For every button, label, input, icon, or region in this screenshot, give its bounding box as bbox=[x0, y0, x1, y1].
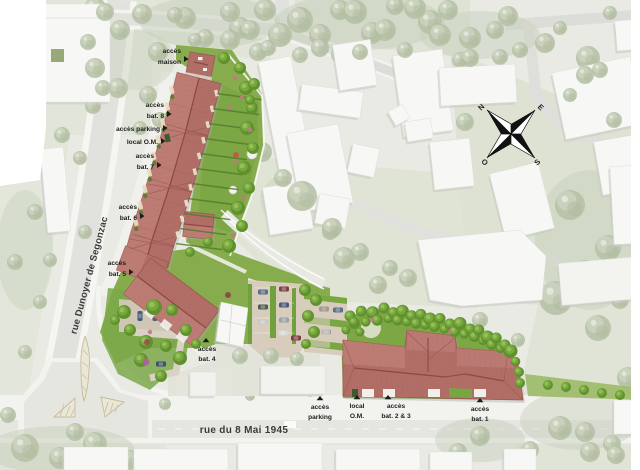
svg-text:parking: parking bbox=[308, 414, 332, 421]
svg-text:maison: maison bbox=[158, 59, 181, 66]
svg-text:accès: accès bbox=[471, 406, 490, 413]
svg-text:accès parking: accès parking bbox=[116, 126, 160, 133]
svg-text:bat. 6: bat. 6 bbox=[120, 215, 138, 222]
svg-text:accès: accès bbox=[136, 153, 155, 160]
svg-text:bat. 2 & 3: bat. 2 & 3 bbox=[381, 413, 411, 420]
svg-text:accès: accès bbox=[119, 204, 138, 211]
svg-text:O.M.: O.M. bbox=[350, 413, 364, 420]
svg-text:bat. 4: bat. 4 bbox=[198, 356, 216, 363]
svg-text:accès: accès bbox=[146, 102, 165, 109]
svg-text:rue du 8 Mai 1945: rue du 8 Mai 1945 bbox=[200, 425, 289, 436]
svg-text:accès: accès bbox=[387, 403, 406, 410]
svg-text:bat. 7: bat. 7 bbox=[137, 164, 155, 171]
svg-text:accès: accès bbox=[311, 404, 330, 411]
svg-text:accès: accès bbox=[198, 346, 217, 353]
svg-text:bat. 1: bat. 1 bbox=[471, 416, 489, 423]
svg-text:local: local bbox=[349, 403, 364, 410]
svg-text:accès: accès bbox=[163, 48, 182, 55]
svg-text:accès: accès bbox=[108, 260, 127, 267]
svg-text:bat. 8: bat. 8 bbox=[147, 113, 165, 120]
svg-text:bat. 5: bat. 5 bbox=[109, 271, 127, 278]
svg-text:local O.M.: local O.M. bbox=[127, 139, 158, 146]
